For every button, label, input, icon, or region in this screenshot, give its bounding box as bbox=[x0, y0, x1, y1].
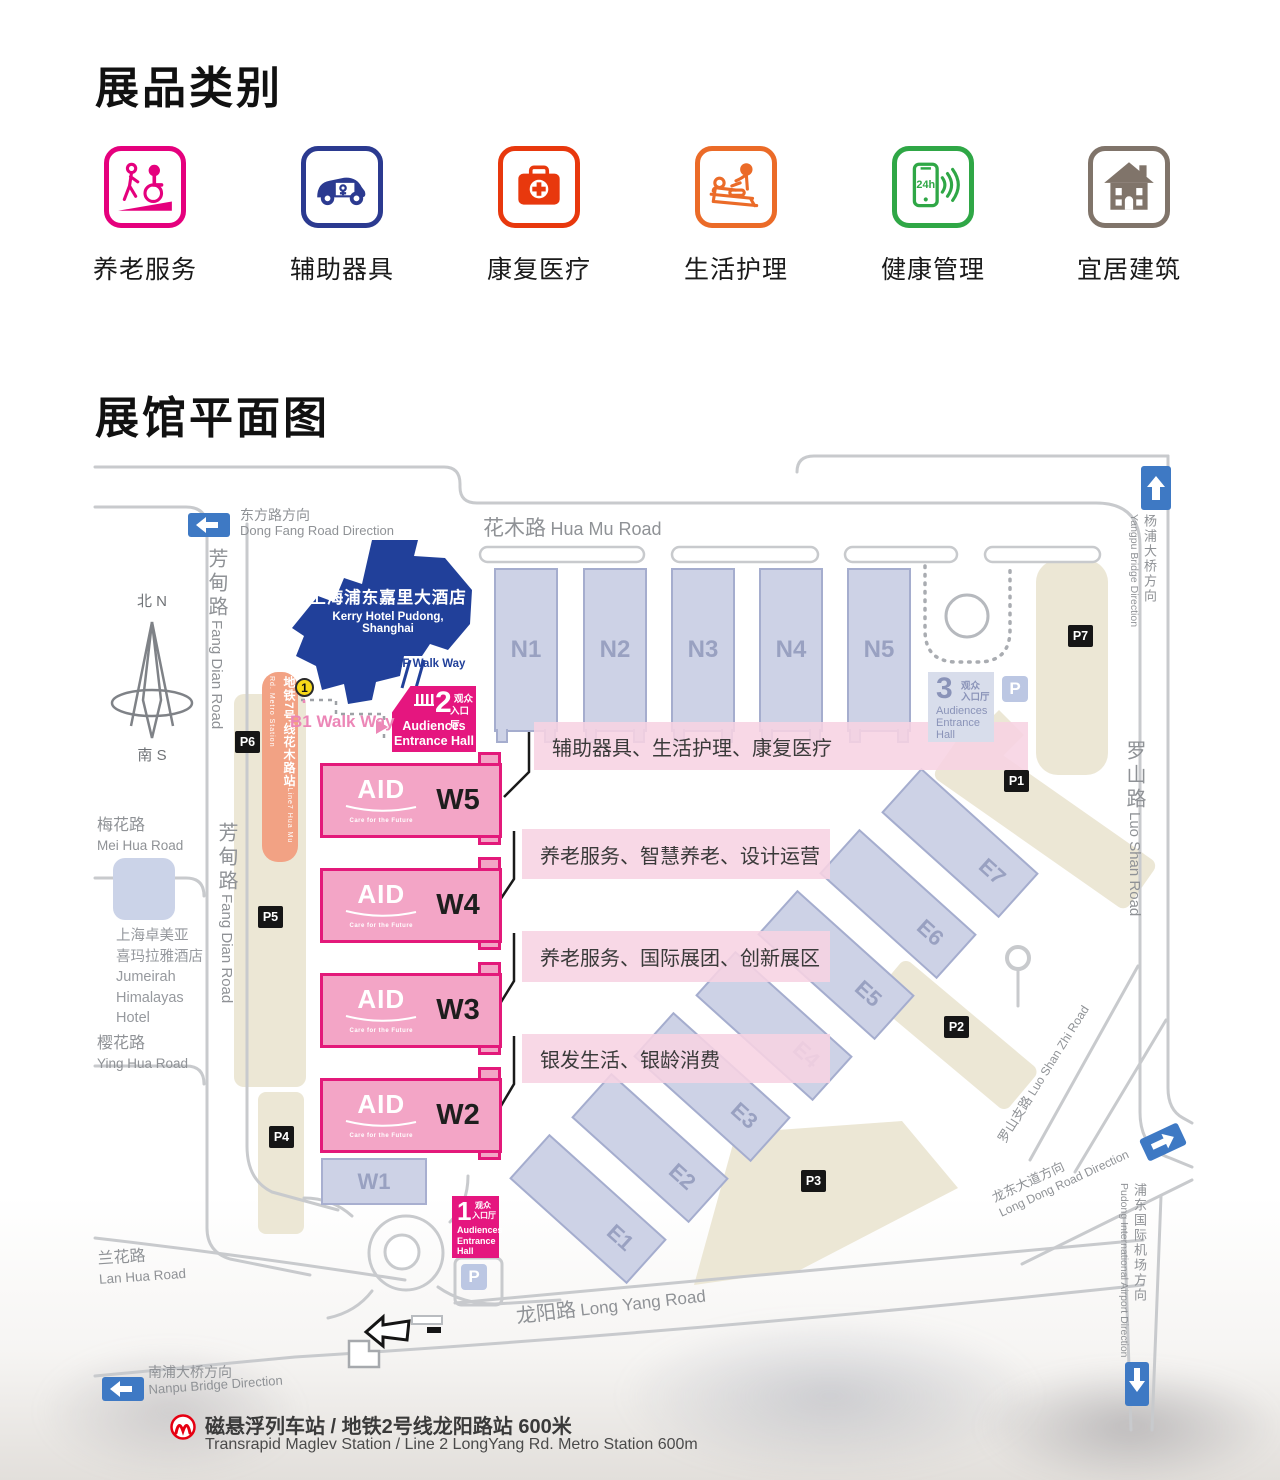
parking-badge-p7: P7 bbox=[1068, 625, 1093, 647]
parking-badge-p6: P6 bbox=[235, 731, 260, 753]
road-label-fangdian-lower: 芳甸路Fang Dian Road bbox=[212, 822, 241, 1022]
road-label-yinghua: 樱花路 Ying Hua Road bbox=[97, 1034, 188, 1074]
road-label-meihua: 梅花路 Mei Hua Road bbox=[97, 816, 183, 856]
direction-arrow-dongfang bbox=[188, 513, 230, 537]
road-label-huamu: 花木路 Hua Mu Road bbox=[483, 512, 662, 542]
lane-dividers bbox=[480, 547, 1100, 562]
aid-logo: AID Care for the Future bbox=[342, 778, 420, 824]
compass-north-label: 北 N bbox=[120, 590, 184, 611]
callout-w2: 银发生活、银龄消费 bbox=[522, 1034, 830, 1083]
footnote-zh: 磁悬浮列车站 / 地铁2号线龙阳路站 600米 bbox=[205, 1410, 572, 1439]
parking-badge-p2: P2 bbox=[944, 1016, 969, 1038]
hall-foot bbox=[496, 729, 508, 743]
hall-n5: N5 bbox=[847, 568, 911, 732]
metro-line-number: 1 bbox=[295, 678, 314, 697]
entrance-en: Audiences Entrance Hall bbox=[936, 705, 987, 741]
aid-swoosh bbox=[344, 1014, 418, 1023]
aid-swoosh bbox=[344, 909, 418, 918]
jumeirah-hotel-label: 上海卓美亚 喜玛拉雅酒店 Jumeirah Himalayas Hotel bbox=[116, 926, 203, 1029]
metro-line7-bar: 地铁7号线花木路站Line7 Hua Mu Rd. Metro Station bbox=[262, 672, 298, 862]
entrance-3: 3 观众 入口厅 Audiences Entrance Hall bbox=[928, 672, 994, 742]
metro-line7-label: 地铁7号线花木路站Line7 Hua Mu Rd. Metro Station bbox=[262, 676, 298, 858]
entrance-number: 3 bbox=[936, 672, 953, 706]
walkway-2f-label: 2F Walk Way bbox=[396, 658, 465, 670]
parking-badge-p4: P4 bbox=[269, 1126, 294, 1148]
entrance-zh: 入口厅 bbox=[472, 1210, 496, 1221]
hall-n3: N3 bbox=[671, 568, 735, 732]
hall-n2: N2 bbox=[583, 568, 647, 732]
floorplan-map: N1 N2 N3 N4 N5 E1 E2 E3 E4 E5 E6 E7 W1 辅… bbox=[0, 0, 1280, 1480]
direction-arrow-yangpu bbox=[1141, 466, 1171, 510]
direction-label-dongfang: 东方路方向 Dong Fang Road Direction bbox=[240, 507, 394, 539]
aid-logo: AID Care for the Future bbox=[342, 883, 420, 929]
direction-label-nanpu: 南浦大桥方向 Nanpu Bridge Direction bbox=[148, 1364, 282, 1398]
callout-w3: 养老服务、国际展团、创新展区 bbox=[522, 931, 830, 982]
direction-label-airport: 浦东国际机场方向 Pudong International Airport Di… bbox=[1118, 1183, 1149, 1413]
entrance-number: 1 bbox=[457, 1196, 471, 1227]
hall-w3: AID Care for the Future W3 bbox=[320, 973, 502, 1048]
gate-icon bbox=[414, 693, 434, 706]
parking-icon: P bbox=[1002, 676, 1028, 702]
parking-badge-p1: P1 bbox=[1004, 770, 1029, 792]
aid-logo: AID Care for the Future bbox=[342, 1093, 420, 1139]
walkway-b1-label: B1 Walk Way bbox=[290, 712, 395, 732]
entrance-zh: 入口厅 bbox=[961, 689, 990, 703]
parking-icon: P bbox=[461, 1264, 487, 1290]
compass-south-label: 南 S bbox=[120, 744, 184, 765]
road-label-luoshan: 罗山路Luo Shan Road bbox=[1120, 740, 1149, 955]
hall-w2: AID Care for the Future W2 bbox=[320, 1078, 502, 1153]
entrance-2: 2 观众 入口厅 Audiences Entrance Hall bbox=[392, 686, 476, 752]
entrance-en: Audiences Entrance Hall bbox=[457, 1225, 503, 1257]
entrance-en: Audiences Entrance Hall bbox=[392, 719, 476, 749]
aid-swoosh bbox=[344, 1119, 418, 1128]
aid-swoosh bbox=[344, 804, 418, 813]
parking-badge-p5: P5 bbox=[258, 906, 283, 928]
road-label-lanhua: 兰花路 Lan Hua Road bbox=[97, 1244, 187, 1290]
page: 展品类别 养老服务 辅助器具 bbox=[0, 0, 1280, 1480]
aid-logo: AID Care for the Future bbox=[342, 988, 420, 1034]
jumeirah-hotel-building bbox=[113, 858, 175, 920]
dropoff-loop bbox=[925, 566, 1010, 662]
hall-w1: W1 bbox=[321, 1158, 427, 1205]
parking-badge-p3: P3 bbox=[801, 1170, 826, 1192]
direction-arrow-nanpu bbox=[102, 1377, 144, 1401]
callout-w4: 养老服务、智慧养老、设计运营 bbox=[522, 829, 830, 879]
hall-n4: N4 bbox=[759, 568, 823, 732]
compass-icon bbox=[112, 622, 192, 738]
metro-logo-footnote bbox=[172, 1416, 195, 1439]
road-label-fangdian-upper: 芳甸路Fang Dian Road bbox=[202, 548, 231, 773]
entrance-1: 1 观众 入口厅 Audiences Entrance Hall bbox=[452, 1196, 499, 1258]
hall-w4: AID Care for the Future W4 bbox=[320, 868, 502, 943]
kerry-hotel-label: 上海浦东嘉里大酒店 Kerry Hotel Pudong, Shanghai bbox=[306, 584, 470, 635]
hall-w5: AID Care for the Future W5 bbox=[320, 763, 502, 838]
site-entrance-marks bbox=[349, 1316, 442, 1367]
direction-label-yangpu: 杨浦大桥方向 Yangpu Bridge Direction bbox=[1128, 514, 1159, 694]
hall-n1: N1 bbox=[494, 568, 558, 732]
footnote-en: Transrapid Maglev Station / Line 2 LongY… bbox=[205, 1436, 698, 1454]
